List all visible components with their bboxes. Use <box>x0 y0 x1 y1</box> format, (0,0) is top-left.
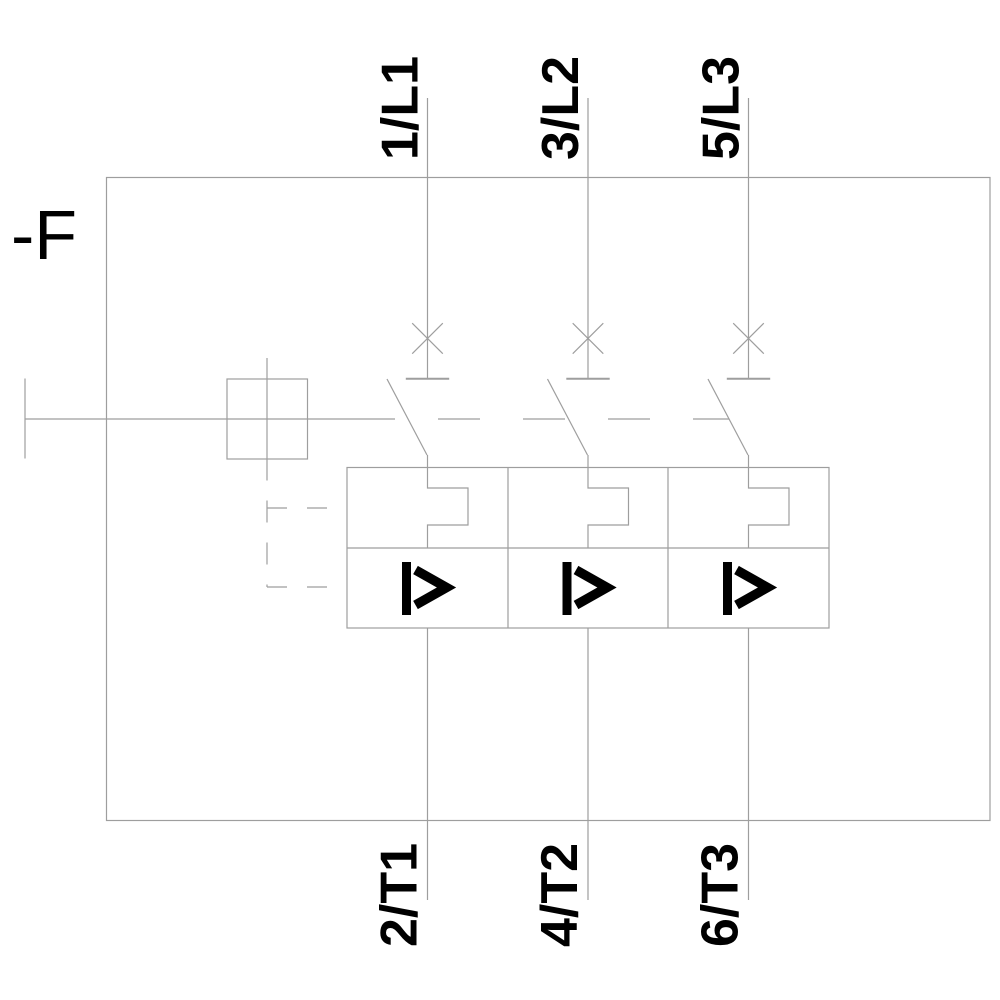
overcurrent-release-icon <box>723 562 768 615</box>
overcurrent-release-icon <box>402 562 447 615</box>
terminal-label-bottom-3: 6/T3 <box>692 843 750 947</box>
schematic-canvas: -F <box>0 0 1000 1000</box>
pole-2 <box>548 98 629 900</box>
terminal-label-top-3: 5/L3 <box>693 56 751 160</box>
terminal-label-bottom-2: 4/T2 <box>531 843 589 947</box>
switch-blade <box>387 379 427 455</box>
thermal-overload-symbol <box>588 468 629 549</box>
terminal-label-top-2: 3/L2 <box>532 56 590 160</box>
thermal-overload-symbol <box>749 468 790 549</box>
thermal-overload-symbol <box>428 468 469 549</box>
terminal-label-bottom-1: 2/T1 <box>371 843 429 947</box>
schematic-page: -F <box>0 0 1000 1000</box>
device-outline-box <box>107 178 991 821</box>
switch-blade <box>708 379 748 455</box>
pole-1 <box>387 98 468 900</box>
overcurrent-release-icon <box>563 562 608 615</box>
actuator-mechanism <box>25 358 729 587</box>
device-designation-label: -F <box>11 196 77 274</box>
pole-3 <box>708 98 789 900</box>
terminal-label-top-1: 1/L1 <box>372 56 430 160</box>
switch-blade <box>548 379 588 455</box>
